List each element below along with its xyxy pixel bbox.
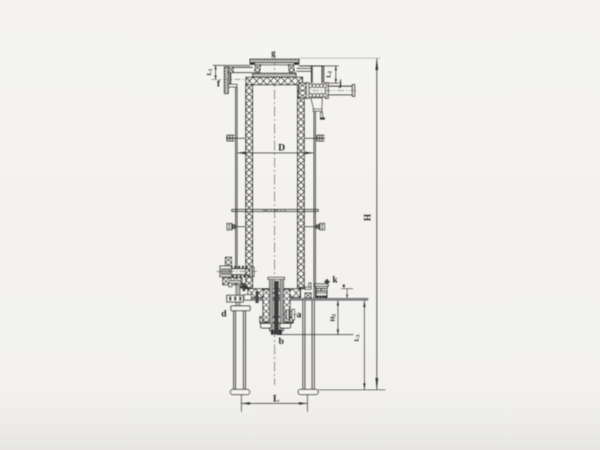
svg-text:D: D <box>278 144 285 154</box>
svg-text:H: H <box>363 214 373 221</box>
svg-text:a: a <box>297 310 302 320</box>
svg-text:L: L <box>273 394 279 404</box>
svg-text:g: g <box>271 48 276 58</box>
svg-text:d: d <box>221 309 227 319</box>
svg-text:k: k <box>333 274 338 284</box>
svg-text:b: b <box>279 337 284 347</box>
